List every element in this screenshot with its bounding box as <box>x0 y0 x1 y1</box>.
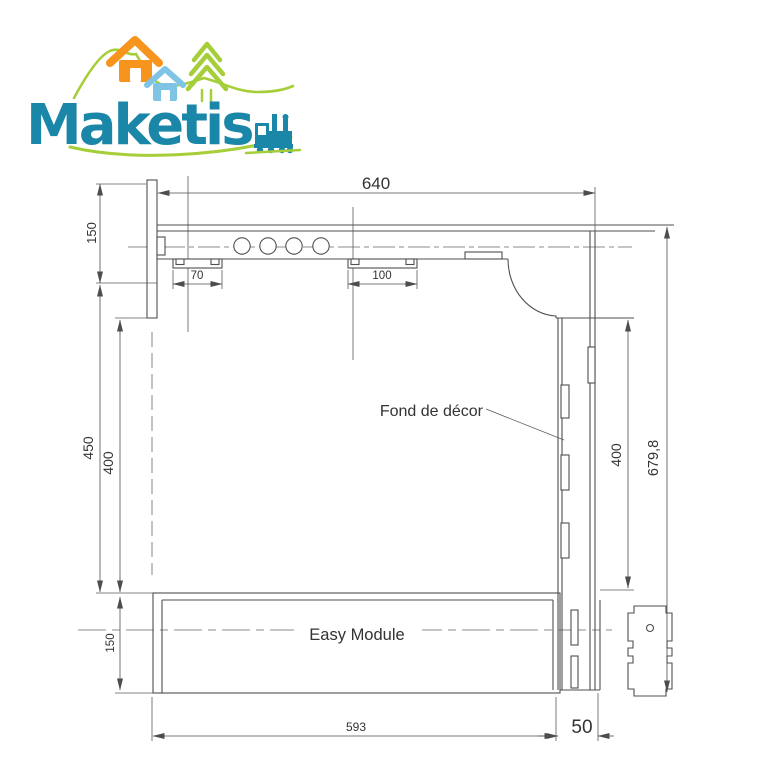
dim-left-inner: 400 <box>100 451 116 475</box>
top-rail <box>157 225 674 318</box>
left-panel-tab <box>157 237 165 255</box>
mounting-holes <box>234 238 329 254</box>
orange-house-icon <box>110 40 159 82</box>
technical-drawing-canvas: Maketis <box>0 0 767 767</box>
dim-left-lower: 150 <box>105 633 117 652</box>
maketis-logo: Maketis <box>26 40 300 158</box>
dim-bottom-depth: 50 <box>571 717 592 738</box>
corner-bracket <box>628 606 672 696</box>
rail-tab-100 <box>348 259 417 268</box>
backdrop-leader-line <box>486 409 564 440</box>
dim-tab-left: 70 <box>191 270 204 282</box>
brand-wordmark: Maketis <box>26 93 252 158</box>
dim-bottom-length: 593 <box>346 720 366 734</box>
steam-train-icon <box>254 114 293 153</box>
end-plate-slot <box>571 610 578 645</box>
rail-top-tab <box>465 252 502 259</box>
end-plate-slot <box>571 656 578 688</box>
rail-tab-70 <box>173 259 222 268</box>
dim-tab-right: 100 <box>372 270 391 282</box>
dim-right-total: 679,8 <box>646 440 662 476</box>
screenshot-root: Maketis <box>0 0 767 767</box>
corner-arc <box>508 259 556 318</box>
dim-left-outer: 450 <box>80 436 96 460</box>
dim-left-upper: 150 <box>84 222 99 244</box>
hills-line-icon <box>74 50 293 98</box>
dim-top-width: 640 <box>362 174 390 193</box>
left-end-panel <box>147 180 157 318</box>
dim-right-inner: 400 <box>608 443 624 467</box>
module-label: Easy Module <box>309 626 404 644</box>
backdrop-label: Fond de décor <box>380 403 484 420</box>
